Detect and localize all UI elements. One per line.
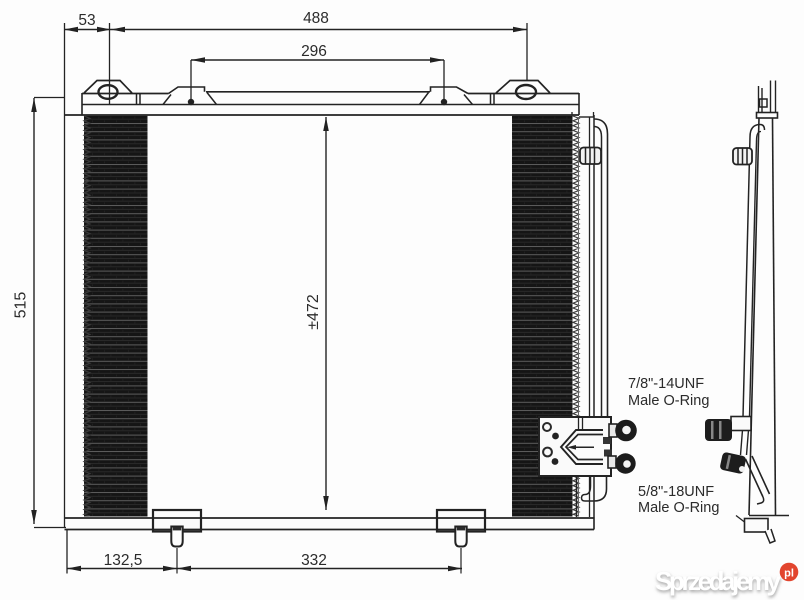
svg-text:Male O-Ring: Male O-Ring [628, 393, 709, 409]
svg-text:5/8"-18UNF: 5/8"-18UNF [638, 484, 714, 500]
svg-text:pl: pl [784, 568, 794, 580]
svg-text:7/8"-14UNF: 7/8"-14UNF [628, 376, 704, 392]
svg-text:132,5: 132,5 [104, 552, 143, 569]
svg-text:Male O-Ring: Male O-Ring [638, 500, 719, 516]
svg-text:53: 53 [78, 12, 95, 29]
svg-text:±472: ±472 [305, 294, 322, 330]
svg-text:332: 332 [301, 552, 327, 569]
svg-text:296: 296 [301, 43, 327, 60]
svg-text:Sprzedajemy: Sprzedajemy [655, 566, 782, 596]
svg-text:488: 488 [303, 10, 329, 27]
svg-text:515: 515 [13, 292, 30, 319]
